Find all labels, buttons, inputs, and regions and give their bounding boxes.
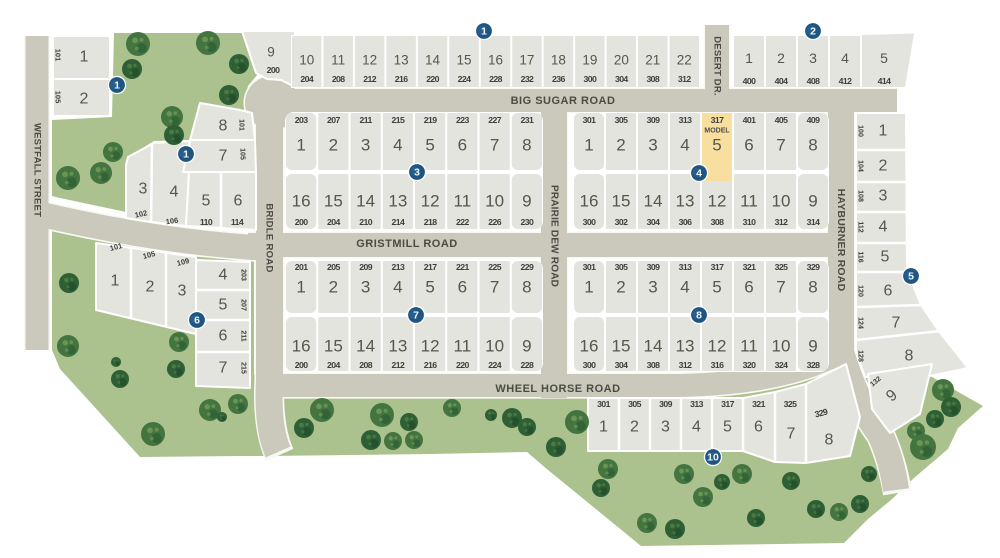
- svg-text:4: 4: [170, 184, 179, 201]
- svg-text:301: 301: [583, 115, 596, 125]
- svg-text:120: 120: [857, 285, 864, 297]
- svg-text:12: 12: [421, 337, 440, 356]
- svg-text:6: 6: [744, 136, 753, 155]
- svg-text:2: 2: [810, 26, 816, 38]
- svg-text:116: 116: [857, 251, 864, 262]
- svg-text:6: 6: [194, 315, 200, 327]
- svg-text:12: 12: [708, 337, 727, 356]
- svg-text:219: 219: [424, 115, 437, 125]
- svg-text:8: 8: [825, 432, 834, 449]
- svg-text:4: 4: [393, 136, 402, 155]
- svg-text:101: 101: [238, 119, 245, 131]
- svg-text:209: 209: [359, 262, 372, 272]
- svg-text:230: 230: [521, 217, 534, 227]
- svg-text:7: 7: [776, 136, 785, 155]
- svg-text:329: 329: [807, 262, 820, 272]
- svg-text:4: 4: [879, 219, 888, 236]
- svg-text:324: 324: [775, 360, 788, 370]
- svg-text:3: 3: [661, 419, 670, 436]
- svg-text:9: 9: [808, 192, 817, 211]
- svg-text:312: 312: [775, 217, 788, 227]
- svg-text:227: 227: [488, 115, 501, 125]
- svg-text:412: 412: [839, 76, 852, 86]
- svg-text:5: 5: [881, 249, 890, 266]
- svg-text:306: 306: [679, 217, 692, 227]
- svg-text:12: 12: [421, 192, 440, 211]
- svg-text:6: 6: [219, 328, 228, 345]
- svg-text:204: 204: [327, 217, 340, 227]
- svg-text:7: 7: [892, 315, 901, 332]
- svg-text:114: 114: [231, 217, 244, 227]
- svg-text:300: 300: [584, 74, 597, 84]
- svg-text:2: 2: [329, 278, 338, 297]
- svg-text:401: 401: [743, 115, 756, 125]
- svg-text:1: 1: [80, 49, 89, 66]
- svg-text:16: 16: [580, 192, 599, 211]
- svg-text:309: 309: [647, 115, 660, 125]
- svg-text:2: 2: [146, 279, 155, 296]
- svg-text:10: 10: [707, 452, 719, 464]
- svg-text:7: 7: [219, 360, 228, 377]
- svg-text:8: 8: [219, 118, 228, 135]
- svg-text:203: 203: [240, 269, 247, 281]
- svg-text:7: 7: [490, 278, 499, 297]
- svg-text:2: 2: [616, 278, 625, 297]
- svg-text:100: 100: [857, 125, 864, 137]
- svg-text:308: 308: [647, 360, 660, 370]
- svg-text:2: 2: [879, 158, 888, 175]
- svg-text:21: 21: [645, 53, 660, 68]
- svg-text:400: 400: [743, 76, 756, 86]
- svg-text:11: 11: [454, 337, 472, 356]
- svg-text:DESERT DR.: DESERT DR.: [712, 36, 723, 96]
- svg-text:8: 8: [522, 136, 531, 155]
- svg-text:212: 212: [392, 360, 405, 370]
- svg-text:5: 5: [880, 50, 888, 66]
- svg-text:14: 14: [356, 337, 375, 356]
- svg-text:305: 305: [615, 262, 628, 272]
- svg-text:12: 12: [362, 53, 377, 68]
- svg-text:12: 12: [708, 192, 727, 211]
- svg-text:WESTFALL STREET: WESTFALL STREET: [32, 123, 43, 217]
- svg-text:13: 13: [676, 192, 695, 211]
- svg-text:4: 4: [393, 278, 402, 297]
- svg-text:217: 217: [424, 262, 437, 272]
- svg-text:104: 104: [857, 160, 864, 172]
- svg-text:228: 228: [489, 74, 502, 84]
- svg-text:214: 214: [392, 217, 405, 227]
- svg-text:16: 16: [580, 337, 599, 356]
- svg-text:1: 1: [599, 419, 608, 436]
- svg-text:216: 216: [395, 74, 408, 84]
- svg-text:1: 1: [584, 278, 593, 297]
- svg-text:215: 215: [392, 115, 405, 125]
- svg-text:305: 305: [628, 399, 641, 409]
- svg-text:4: 4: [692, 419, 701, 436]
- svg-text:3: 3: [648, 278, 657, 297]
- svg-text:124: 124: [857, 317, 864, 329]
- svg-text:210: 210: [359, 217, 372, 227]
- svg-text:320: 320: [743, 360, 756, 370]
- svg-text:310: 310: [743, 217, 756, 227]
- svg-text:128: 128: [857, 350, 864, 362]
- svg-text:5: 5: [425, 278, 434, 297]
- svg-text:5: 5: [425, 136, 434, 155]
- svg-text:232: 232: [521, 74, 534, 84]
- svg-text:236: 236: [552, 74, 565, 84]
- svg-text:15: 15: [612, 337, 631, 356]
- svg-text:105: 105: [239, 148, 246, 160]
- svg-text:220: 220: [426, 74, 439, 84]
- svg-text:229: 229: [521, 262, 534, 272]
- svg-text:9: 9: [808, 337, 817, 356]
- svg-text:16: 16: [292, 192, 311, 211]
- svg-text:3: 3: [414, 167, 420, 179]
- svg-text:6: 6: [744, 278, 753, 297]
- svg-text:7: 7: [490, 136, 499, 155]
- svg-text:5: 5: [723, 419, 732, 436]
- svg-text:203: 203: [295, 115, 308, 125]
- svg-text:11: 11: [454, 192, 472, 211]
- svg-text:200: 200: [267, 65, 280, 75]
- svg-text:8: 8: [522, 278, 531, 297]
- svg-text:10: 10: [772, 192, 791, 211]
- svg-text:1: 1: [879, 123, 888, 140]
- svg-text:300: 300: [583, 360, 596, 370]
- svg-text:8: 8: [808, 278, 817, 297]
- svg-text:314: 314: [807, 217, 820, 227]
- svg-text:204: 204: [300, 74, 313, 84]
- svg-text:10: 10: [772, 337, 791, 356]
- svg-text:200: 200: [295, 217, 308, 227]
- svg-text:BRIDLE ROAD: BRIDLE ROAD: [264, 203, 275, 272]
- svg-text:313: 313: [679, 262, 692, 272]
- svg-text:309: 309: [647, 262, 660, 272]
- svg-text:22: 22: [677, 53, 692, 68]
- svg-text:6: 6: [884, 283, 893, 300]
- svg-text:1: 1: [296, 278, 305, 297]
- svg-text:408: 408: [807, 76, 820, 86]
- svg-text:GRISTMILL ROAD: GRISTMILL ROAD: [356, 238, 458, 250]
- svg-text:301: 301: [583, 262, 596, 272]
- svg-text:313: 313: [679, 115, 692, 125]
- svg-text:325: 325: [775, 262, 788, 272]
- svg-text:106: 106: [165, 216, 179, 227]
- svg-text:4: 4: [680, 136, 689, 155]
- svg-text:325: 325: [784, 399, 797, 409]
- svg-text:316: 316: [711, 360, 724, 370]
- svg-text:2: 2: [329, 136, 338, 155]
- svg-text:16: 16: [488, 53, 503, 68]
- svg-text:204: 204: [327, 360, 340, 370]
- svg-text:4: 4: [696, 168, 702, 180]
- svg-text:223: 223: [456, 115, 469, 125]
- svg-text:9: 9: [522, 192, 531, 211]
- svg-text:8: 8: [808, 136, 817, 155]
- svg-text:14: 14: [644, 192, 663, 211]
- svg-text:6: 6: [234, 193, 243, 210]
- svg-text:328: 328: [807, 360, 820, 370]
- svg-text:305: 305: [615, 115, 628, 125]
- svg-text:13: 13: [676, 337, 695, 356]
- svg-text:208: 208: [332, 74, 345, 84]
- svg-text:BIG SUGAR ROAD: BIG SUGAR ROAD: [511, 95, 616, 107]
- svg-text:308: 308: [711, 217, 724, 227]
- svg-text:5: 5: [712, 278, 721, 297]
- svg-text:301: 301: [597, 399, 610, 409]
- svg-text:3: 3: [361, 278, 370, 297]
- svg-text:108: 108: [857, 190, 864, 202]
- svg-text:5: 5: [908, 271, 914, 283]
- svg-text:MODEL: MODEL: [704, 128, 730, 135]
- svg-text:WHEEL HORSE ROAD: WHEEL HORSE ROAD: [495, 383, 620, 395]
- svg-text:317: 317: [711, 262, 724, 272]
- svg-text:312: 312: [678, 74, 691, 84]
- svg-text:7: 7: [776, 278, 785, 297]
- svg-text:2: 2: [616, 136, 625, 155]
- svg-text:7: 7: [413, 310, 419, 322]
- svg-text:321: 321: [752, 399, 765, 409]
- svg-text:14: 14: [644, 337, 663, 356]
- svg-text:5: 5: [219, 297, 228, 314]
- svg-text:11: 11: [740, 337, 758, 356]
- svg-text:1: 1: [114, 80, 120, 92]
- svg-text:17: 17: [519, 53, 534, 68]
- svg-text:216: 216: [424, 360, 437, 370]
- svg-text:8: 8: [696, 310, 702, 322]
- svg-text:2: 2: [630, 419, 639, 436]
- svg-text:3: 3: [139, 181, 148, 198]
- svg-text:2: 2: [80, 91, 89, 108]
- svg-text:6: 6: [754, 419, 763, 436]
- svg-text:19: 19: [582, 53, 597, 68]
- svg-text:15: 15: [324, 337, 343, 356]
- svg-text:1: 1: [183, 149, 189, 161]
- svg-text:302: 302: [615, 217, 628, 227]
- svg-text:308: 308: [646, 74, 659, 84]
- svg-text:14: 14: [356, 192, 375, 211]
- svg-text:6: 6: [458, 278, 467, 297]
- svg-text:207: 207: [327, 115, 340, 125]
- svg-text:7: 7: [787, 426, 796, 443]
- svg-text:1: 1: [584, 136, 593, 155]
- svg-text:1: 1: [296, 136, 305, 155]
- svg-text:4: 4: [680, 278, 689, 297]
- svg-text:5: 5: [202, 193, 211, 210]
- svg-text:110: 110: [200, 217, 213, 227]
- svg-text:404: 404: [775, 76, 788, 86]
- svg-text:112: 112: [857, 221, 864, 232]
- svg-text:20: 20: [614, 53, 629, 68]
- svg-text:5: 5: [712, 136, 721, 155]
- svg-text:1: 1: [745, 50, 753, 66]
- svg-text:14: 14: [425, 53, 441, 68]
- svg-text:215: 215: [240, 362, 247, 374]
- svg-text:PRAIRIE DEW ROAD: PRAIRIE DEW ROAD: [549, 185, 560, 287]
- svg-text:3: 3: [879, 188, 888, 205]
- svg-text:321: 321: [743, 262, 756, 272]
- svg-text:405: 405: [775, 115, 788, 125]
- svg-text:312: 312: [679, 360, 692, 370]
- svg-text:222: 222: [456, 217, 469, 227]
- svg-text:101: 101: [54, 49, 63, 62]
- svg-text:105: 105: [54, 91, 63, 104]
- svg-text:201: 201: [295, 262, 308, 272]
- svg-text:11: 11: [740, 192, 758, 211]
- svg-text:3: 3: [648, 136, 657, 155]
- svg-text:7: 7: [219, 148, 228, 165]
- svg-text:13: 13: [388, 337, 407, 356]
- svg-text:224: 224: [458, 74, 471, 84]
- svg-text:200: 200: [295, 360, 308, 370]
- svg-text:211: 211: [360, 115, 373, 125]
- svg-text:212: 212: [363, 74, 376, 84]
- svg-text:231: 231: [521, 115, 534, 125]
- svg-text:211: 211: [240, 330, 247, 341]
- svg-text:317: 317: [721, 399, 734, 409]
- svg-text:HAYBURNER ROAD: HAYBURNER ROAD: [835, 189, 847, 292]
- svg-text:213: 213: [392, 262, 405, 272]
- svg-text:15: 15: [324, 192, 343, 211]
- svg-text:220: 220: [456, 360, 469, 370]
- svg-text:4: 4: [219, 267, 228, 284]
- svg-text:205: 205: [327, 262, 340, 272]
- svg-text:304: 304: [615, 74, 628, 84]
- svg-text:1: 1: [111, 273, 120, 290]
- svg-text:1: 1: [481, 26, 487, 38]
- svg-text:414: 414: [878, 76, 891, 86]
- svg-text:16: 16: [292, 337, 311, 356]
- svg-text:9: 9: [522, 337, 531, 356]
- svg-text:4: 4: [841, 50, 849, 66]
- svg-text:13: 13: [394, 53, 409, 68]
- svg-text:6: 6: [458, 136, 467, 155]
- svg-text:10: 10: [485, 192, 504, 211]
- svg-text:2: 2: [777, 50, 785, 66]
- svg-text:3: 3: [178, 283, 187, 300]
- svg-text:225: 225: [488, 262, 501, 272]
- svg-text:15: 15: [612, 192, 631, 211]
- svg-text:309: 309: [659, 399, 672, 409]
- svg-text:304: 304: [647, 217, 660, 227]
- svg-text:10: 10: [485, 337, 504, 356]
- svg-text:15: 15: [457, 53, 472, 68]
- svg-text:228: 228: [521, 360, 534, 370]
- svg-text:218: 218: [424, 217, 437, 227]
- svg-text:9: 9: [267, 45, 275, 60]
- svg-text:208: 208: [359, 360, 372, 370]
- svg-text:13: 13: [388, 192, 407, 211]
- svg-text:317: 317: [711, 115, 724, 125]
- svg-text:18: 18: [551, 53, 566, 68]
- svg-text:8: 8: [905, 348, 914, 365]
- svg-text:300: 300: [583, 217, 596, 227]
- svg-text:3: 3: [361, 136, 370, 155]
- svg-text:3: 3: [809, 50, 817, 66]
- svg-text:313: 313: [690, 399, 703, 409]
- svg-text:226: 226: [488, 217, 501, 227]
- svg-text:11: 11: [331, 53, 345, 68]
- svg-text:10: 10: [299, 53, 314, 68]
- svg-text:221: 221: [456, 262, 469, 272]
- svg-text:304: 304: [615, 360, 628, 370]
- svg-text:409: 409: [807, 115, 820, 125]
- svg-text:224: 224: [488, 360, 501, 370]
- svg-text:207: 207: [240, 299, 247, 311]
